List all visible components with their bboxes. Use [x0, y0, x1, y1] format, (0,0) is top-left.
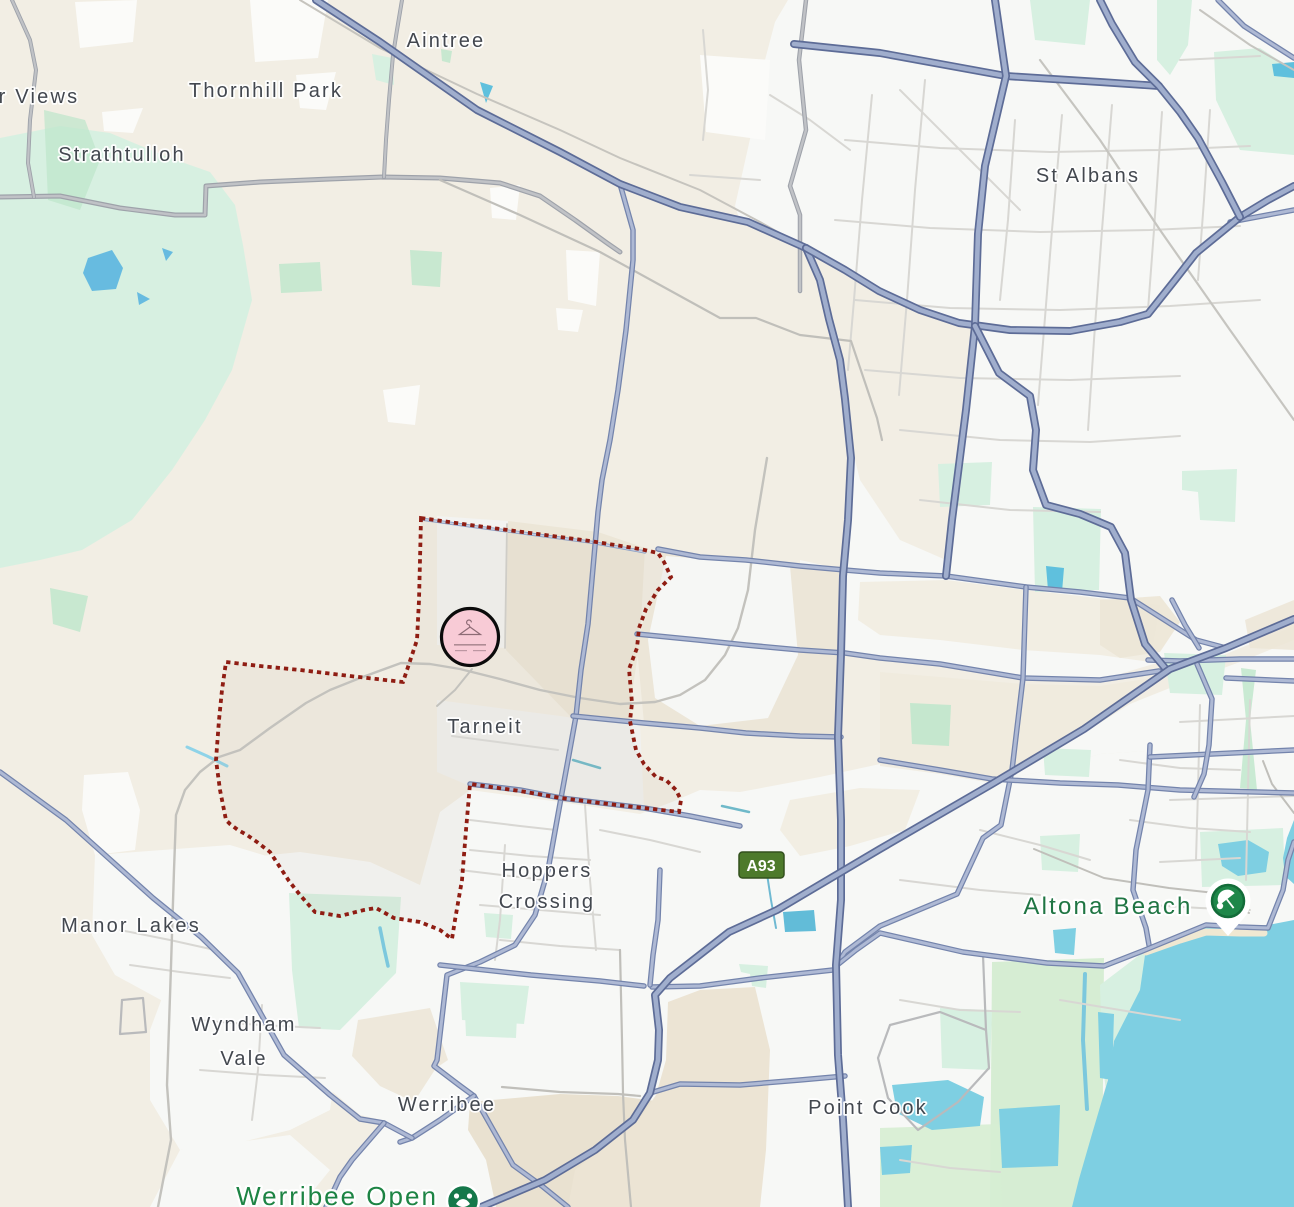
svg-text:Werribee Open: Werribee Open	[236, 1181, 438, 1207]
svg-text:Werribee: Werribee	[398, 1094, 496, 1116]
svg-text:Manor Lakes: Manor Lakes	[61, 915, 201, 937]
svg-text:Thornhill Park: Thornhill Park	[189, 80, 343, 102]
svg-text:Strathtulloh: Strathtulloh	[58, 144, 186, 166]
svg-text:St Albans: St Albans	[1036, 165, 1140, 187]
svg-text:Altona Beach: Altona Beach	[1023, 893, 1192, 920]
svg-text:Point Cook: Point Cook	[808, 1097, 928, 1119]
svg-text:Tarneit: Tarneit	[447, 716, 522, 738]
svg-text:Weir Views: Weir Views	[0, 86, 79, 108]
svg-text:Wyndham: Wyndham	[191, 1014, 296, 1036]
svg-text:Aintree: Aintree	[407, 30, 486, 52]
svg-text:Hoppers: Hoppers	[502, 860, 593, 882]
svg-text:Crossing: Crossing	[499, 891, 596, 913]
svg-text:A93: A93	[746, 858, 775, 875]
svg-text:Vale: Vale	[220, 1048, 267, 1070]
